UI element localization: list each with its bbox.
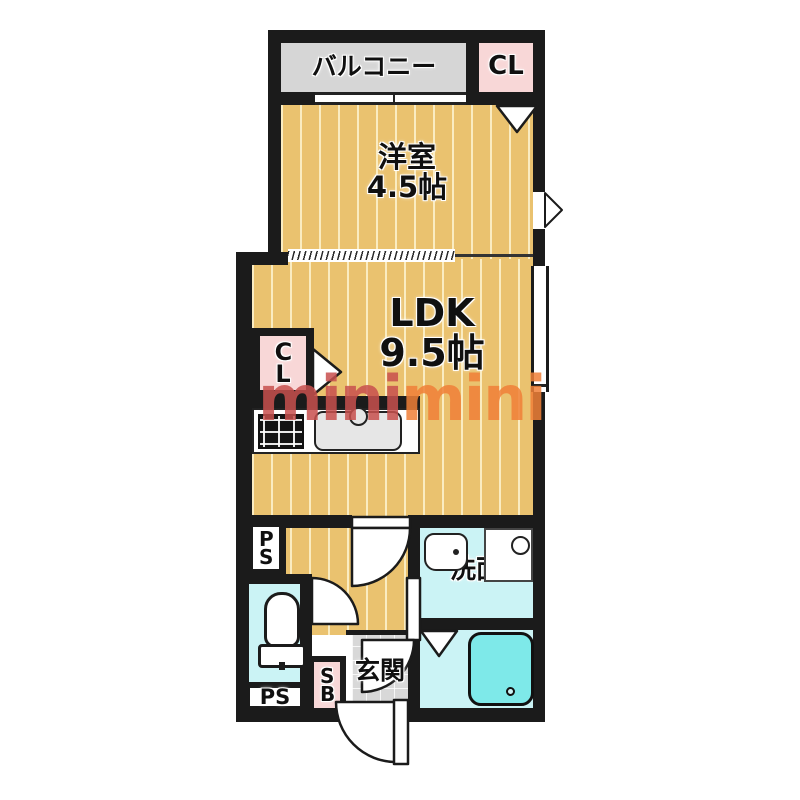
wall-western-left: [268, 43, 281, 259]
door-leaf-washroom: [407, 578, 420, 640]
floorplan-canvas: バルコニー CL 洋室 4.5帖 LDK 9.5帖 洗面 玄関: [0, 0, 800, 800]
washbasin-icon: [424, 533, 468, 571]
western-room-label: 洋室 4.5帖: [342, 142, 472, 203]
toilet-lever: [279, 662, 285, 670]
window-tick: [393, 95, 395, 102]
western-room-floor: 洋室 4.5帖: [281, 104, 533, 259]
bathtub-drain: [506, 687, 515, 696]
wall-ldk-left: [236, 252, 252, 528]
pipe-space-upper-label: PS: [259, 530, 273, 567]
wall-washroom-left-upper: [408, 515, 420, 578]
window-vent-marker: [545, 193, 562, 227]
bathtub-icon: [468, 632, 534, 706]
watermark-logo: minimini: [258, 368, 545, 430]
pipe-space-lower-label: PS: [260, 686, 291, 708]
wall-bath-bottom: [408, 708, 545, 722]
western-room-vent-gap: [533, 192, 545, 229]
wall-entrance-top-line: [346, 630, 408, 635]
wall-washroom-bath-divider: [408, 618, 545, 630]
toilet-icon: [254, 590, 310, 676]
entrance-floor: 玄関: [352, 632, 408, 712]
balcony-floor: バルコニー: [281, 43, 466, 92]
watermark-part2: mini: [401, 362, 544, 435]
ldk-name: LDK: [322, 294, 542, 334]
partition-line: [455, 254, 533, 257]
wall-bath-left: [408, 640, 420, 710]
closet-top-label: CL: [479, 53, 533, 80]
balcony-label: バルコニー: [299, 54, 449, 80]
washing-machine-icon: [484, 528, 533, 582]
pipe-space-lower-box: PS: [244, 682, 306, 712]
watermark-part1: mini: [258, 362, 401, 435]
washing-machine-door-circle: [511, 536, 530, 555]
pipe-space-upper-box: PS: [246, 520, 286, 576]
western-room-name: 洋室: [342, 142, 472, 172]
wall-right-mid: [533, 228, 545, 270]
accordion-partition: [288, 251, 455, 260]
shoe-box: SB: [308, 656, 346, 714]
toilet-bowl: [264, 592, 300, 648]
wall-top: [268, 30, 545, 43]
closet-top-floor: CL: [479, 43, 533, 92]
balcony-window: [315, 92, 466, 105]
shoe-box-label: SB: [320, 667, 334, 704]
wall-washroom-top: [408, 515, 545, 528]
wall-partition-stub: [236, 252, 288, 265]
western-room-size: 4.5帖: [342, 172, 472, 202]
entrance-label: 玄関: [353, 658, 407, 684]
wall-right-lower: [533, 390, 545, 722]
washbasin-faucet-dot: [453, 549, 459, 555]
wall-right-upper: [533, 30, 545, 192]
